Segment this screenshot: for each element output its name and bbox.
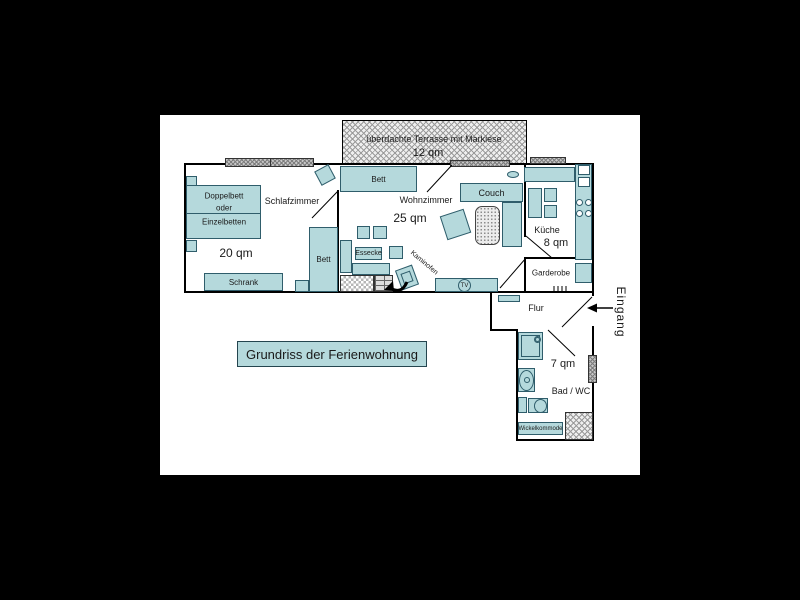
- changing-table: Wickelkommode: [518, 422, 563, 435]
- stove-burner-3: [576, 210, 583, 217]
- wall-wohnzimmer-garderobe: [524, 257, 526, 292]
- shower-drain-inner: [535, 337, 540, 342]
- hearth-plate: [340, 275, 374, 292]
- window-schlafzimmer-right: [270, 158, 314, 167]
- wc-toilet: [528, 398, 548, 413]
- window-wohnzimmer: [450, 160, 510, 167]
- guest-bed: Bett: [340, 166, 417, 192]
- window-kueche: [530, 157, 566, 164]
- sink-basin-2: [578, 177, 590, 187]
- door-terrasse: [427, 165, 452, 192]
- tv-set: TV: [458, 279, 471, 292]
- nightstand-bottom: [186, 240, 197, 252]
- terrace-label: überdachte Terrasse mit Markiese: [366, 134, 501, 144]
- dining-chair-2: [373, 226, 387, 239]
- stove-burner-2: [585, 199, 592, 206]
- wc-bowl: [534, 399, 547, 413]
- dining-table: Essecke: [355, 247, 382, 260]
- kitchen-counter-top: [524, 167, 575, 182]
- schrank-label: Schrank: [229, 278, 258, 287]
- entrance-arrow-head: [587, 304, 597, 313]
- washbasin-drain: [524, 377, 530, 383]
- tv-sideboard: TV: [435, 278, 498, 292]
- page-background: überdachte Terrasse mit Markiese 12 qm D…: [0, 0, 800, 600]
- kitchen-table: [528, 188, 542, 218]
- stove-burner-4: [585, 210, 592, 217]
- door-garderobe: [500, 258, 526, 288]
- shower-drain: [534, 336, 541, 343]
- armchair: [440, 209, 472, 241]
- bad-area: 7 qm: [551, 358, 575, 370]
- tv-label: TV: [461, 283, 469, 289]
- kitchen-chair-2: [544, 205, 557, 218]
- sink-basin-1: [578, 165, 590, 175]
- terrace-area-label: 12 qm: [413, 147, 444, 159]
- stove-burner-1: [576, 199, 583, 206]
- wall-right-upper: [592, 163, 594, 296]
- window-bad: [588, 355, 597, 383]
- plan-title-box: Grundriss der Ferienwohnung: [237, 341, 427, 367]
- double-bed: Doppelbett oder Einzelbetten: [186, 185, 261, 239]
- window-schlafzimmer-left: [225, 158, 271, 167]
- dining-chair-1: [357, 226, 370, 239]
- wohnzimmer-area: 25 qm: [393, 211, 426, 225]
- wohnzimmer-name: Wohnzimmer: [400, 195, 453, 205]
- dining-bench-horizontal: [352, 263, 390, 275]
- kitchen-chair-1: [544, 188, 557, 202]
- bed-divider-line: [187, 213, 260, 214]
- guest-bed-label: Bett: [371, 175, 385, 184]
- rug: [475, 206, 500, 245]
- wardrobe-schrank: Schrank: [204, 273, 283, 291]
- double-bed-label-3: Einzelbetten: [202, 218, 246, 227]
- flur-shelf: [498, 295, 520, 302]
- side-table-oval: [507, 171, 519, 178]
- door-bad: [548, 330, 575, 356]
- wc-cistern: [518, 397, 527, 413]
- chair-schlafzimmer: [314, 164, 336, 186]
- plan-title: Grundriss der Ferienwohnung: [246, 347, 418, 362]
- dining-chair-3: [389, 246, 403, 259]
- schlafzimmer-area: 20 qm: [219, 246, 252, 260]
- washbasin-bowl: [519, 370, 534, 391]
- kueche-name: Küche: [534, 225, 560, 235]
- wood-stove: [395, 265, 419, 291]
- couch-label: Couch: [478, 188, 504, 198]
- chimney-brick: [374, 275, 393, 292]
- flur-name: Flur: [528, 303, 544, 313]
- garderobe-name: Garderobe: [532, 269, 570, 278]
- essecke-label: Essecke: [355, 250, 381, 257]
- schlafzimmer-name: Schlafzimmer: [265, 196, 320, 206]
- nightstand-single-bed: [295, 280, 309, 292]
- wall-flur-bottom: [490, 329, 518, 331]
- floorplan-canvas: überdachte Terrasse mit Markiese 12 qm D…: [160, 115, 640, 475]
- wall-flur-left: [490, 291, 492, 331]
- couch: Couch: [460, 183, 523, 202]
- single-bed-label: Bett: [316, 255, 330, 264]
- garderobe-cabinet: [575, 263, 592, 283]
- bad-hatched-area: [565, 412, 593, 440]
- shower: [518, 332, 543, 360]
- wickelkommode-label: Wickelkommode: [519, 426, 563, 432]
- door-eingang: [562, 297, 592, 327]
- couch-seat: [502, 202, 522, 247]
- double-bed-label-1: Doppelbett: [205, 192, 244, 201]
- single-bed: Bett: [309, 227, 338, 292]
- wood-stove-inner: [400, 271, 413, 285]
- double-bed-label-2: oder: [216, 204, 232, 213]
- dining-bench-vertical: [340, 240, 352, 273]
- bad-name: Bad / WC: [552, 386, 591, 396]
- entrance-label: Eingang: [614, 286, 628, 337]
- kueche-area: 8 qm: [544, 237, 568, 249]
- washbasin: [518, 368, 535, 392]
